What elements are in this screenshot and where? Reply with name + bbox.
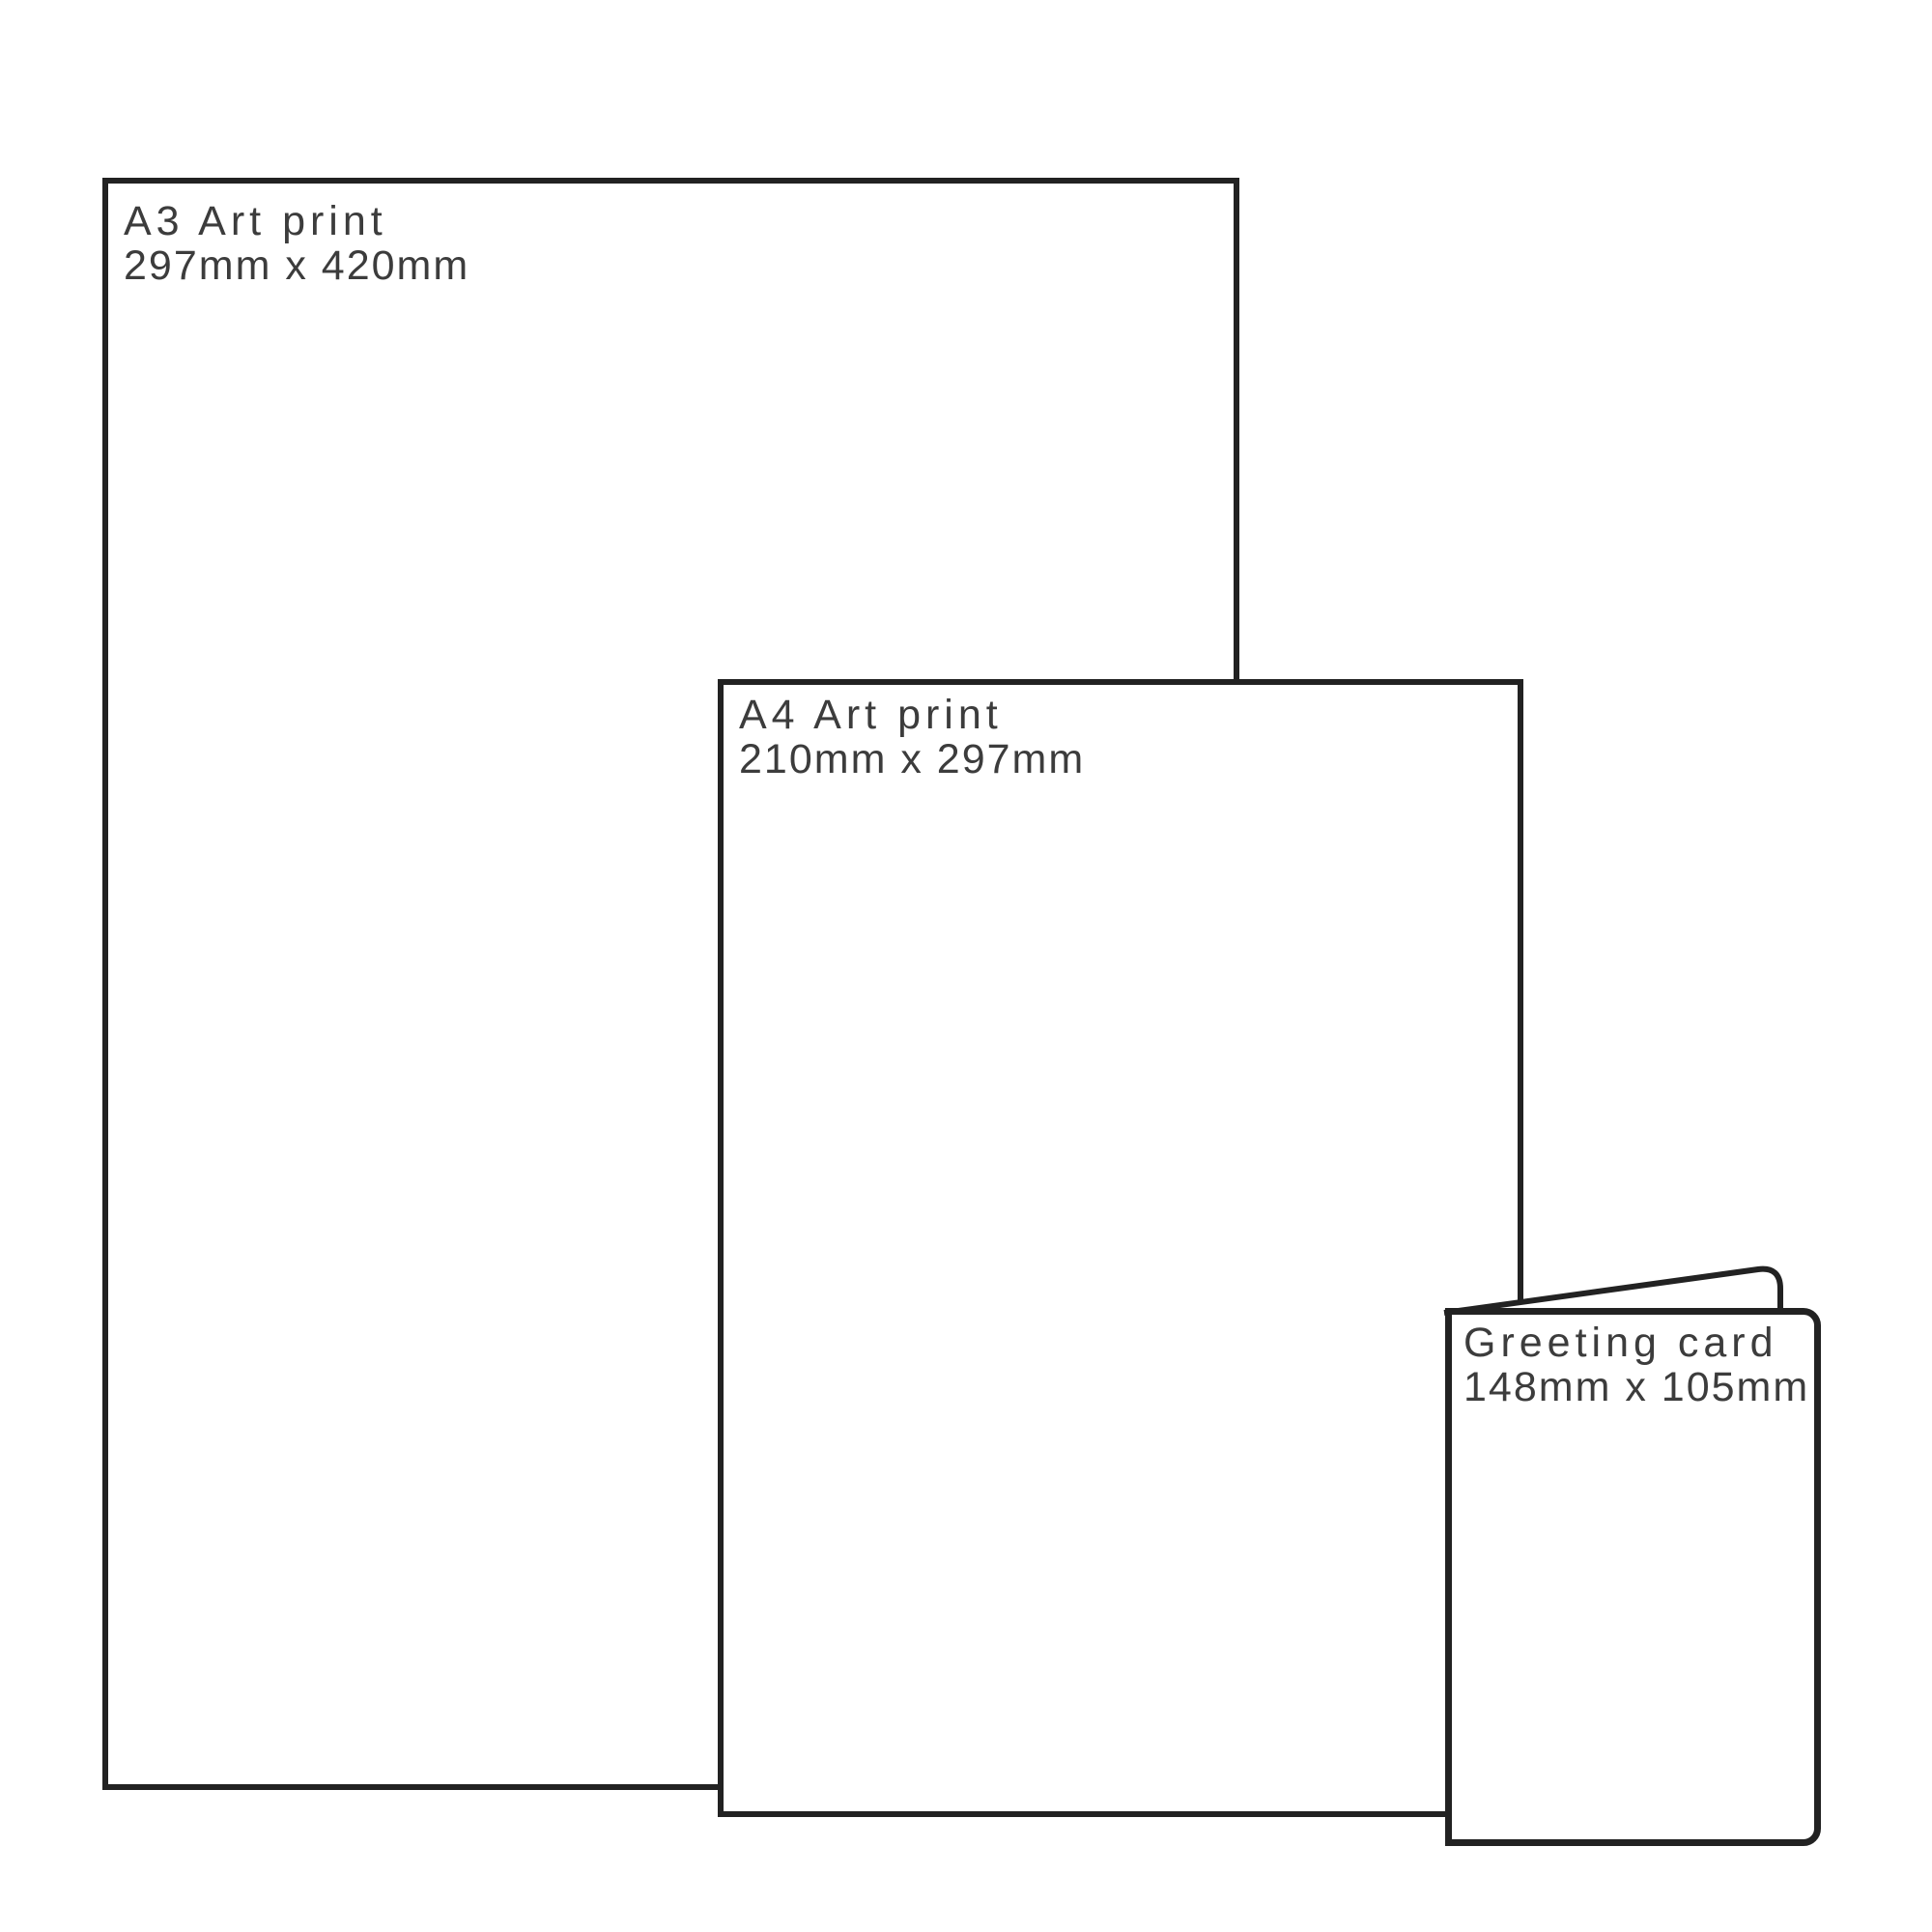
a4-print-dimensions: 210mm x 297mm <box>739 737 1518 781</box>
greeting-card-title: Greeting card <box>1463 1321 1814 1365</box>
a4-print-label: A4 Art print 210mm x 297mm <box>739 693 1518 781</box>
greeting-card-front: Greeting card 148mm x 105mm <box>1445 1308 1821 1846</box>
a4-print-rectangle: A4 Art print 210mm x 297mm <box>718 679 1523 1817</box>
a3-print-dimensions: 297mm x 420mm <box>124 243 1234 288</box>
print-size-comparison-diagram: A3 Art print 297mm x 420mm A4 Art print … <box>0 0 1932 1932</box>
a3-print-label: A3 Art print 297mm x 420mm <box>124 199 1234 288</box>
a4-print-title: A4 Art print <box>739 693 1518 737</box>
greeting-card-dimensions: 148mm x 105mm <box>1463 1365 1814 1409</box>
a3-print-title: A3 Art print <box>124 199 1234 243</box>
greeting-card-label: Greeting card 148mm x 105mm <box>1463 1321 1814 1409</box>
